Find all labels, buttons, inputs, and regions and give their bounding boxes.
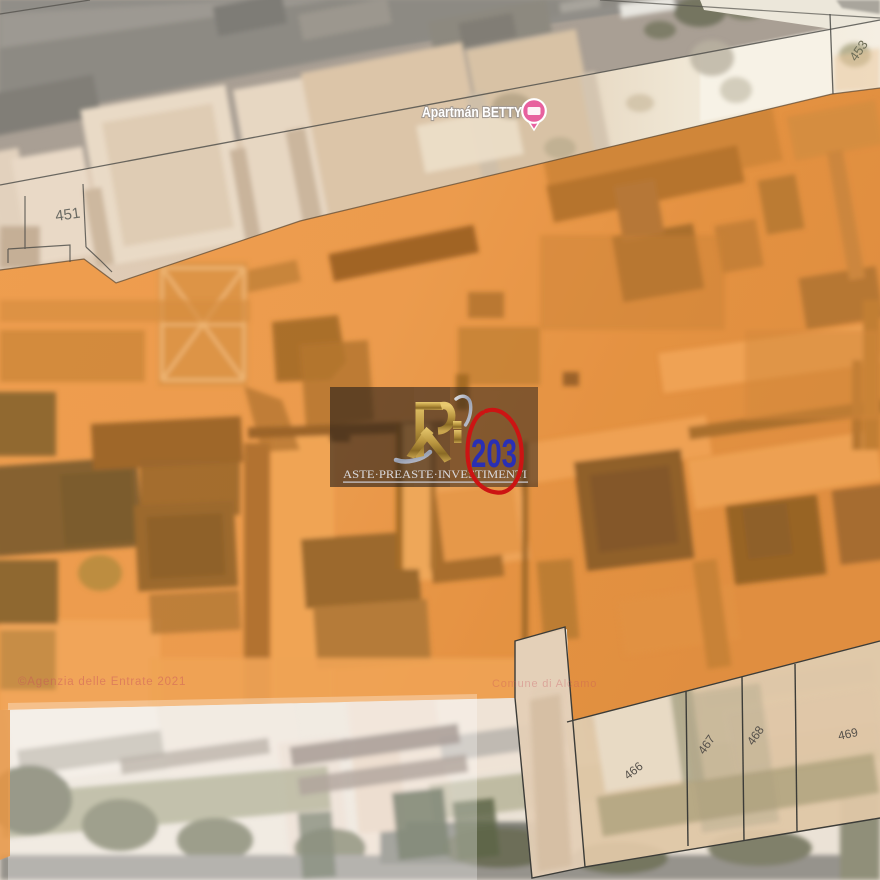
svg-text:Apartmán BETTY: Apartmán BETTY	[422, 105, 522, 121]
svg-text:©Agenzia delle Entrate 2021: ©Agenzia delle Entrate 2021	[18, 676, 186, 688]
svg-text:Comune di Alcamo: Comune di Alcamo	[492, 678, 597, 690]
svg-text:451: 451	[54, 205, 81, 225]
svg-text:203: 203	[471, 432, 517, 476]
